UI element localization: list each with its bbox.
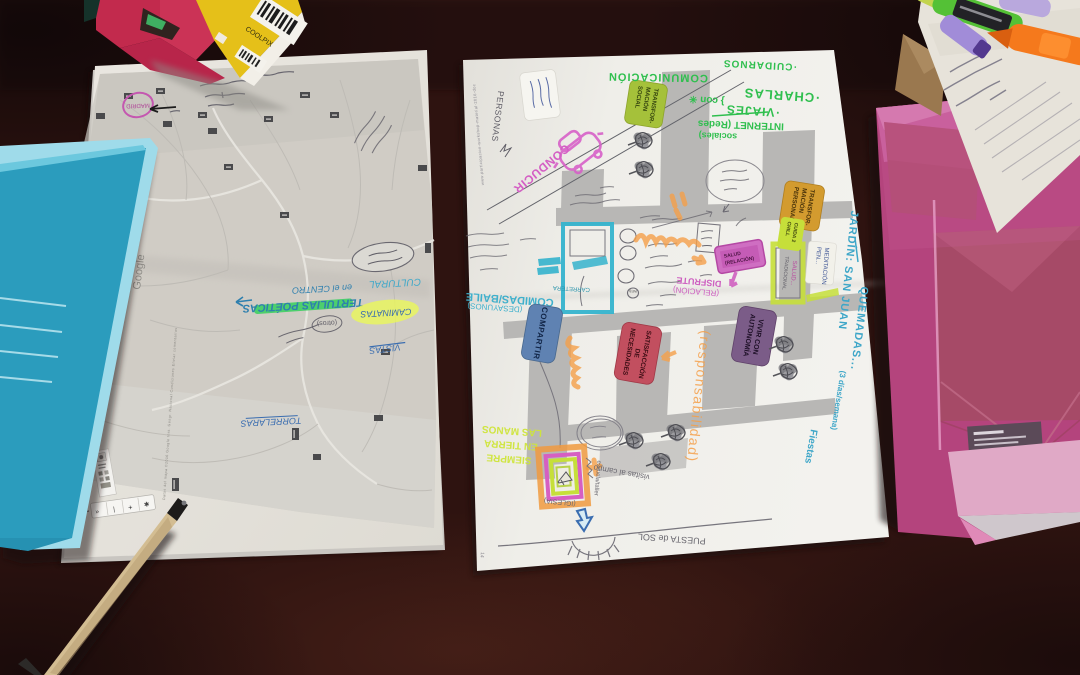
svg-text:sociales): sociales)	[698, 130, 737, 141]
svg-text:14: 14	[478, 552, 485, 558]
svg-text:MADRID: MADRID	[125, 102, 150, 109]
svg-text:WEB: WEB	[628, 289, 637, 293]
svg-text:(otros): (otros)	[317, 318, 338, 326]
svg-text:COMUNICACIÓN: COMUNICACIÓN	[608, 70, 708, 85]
